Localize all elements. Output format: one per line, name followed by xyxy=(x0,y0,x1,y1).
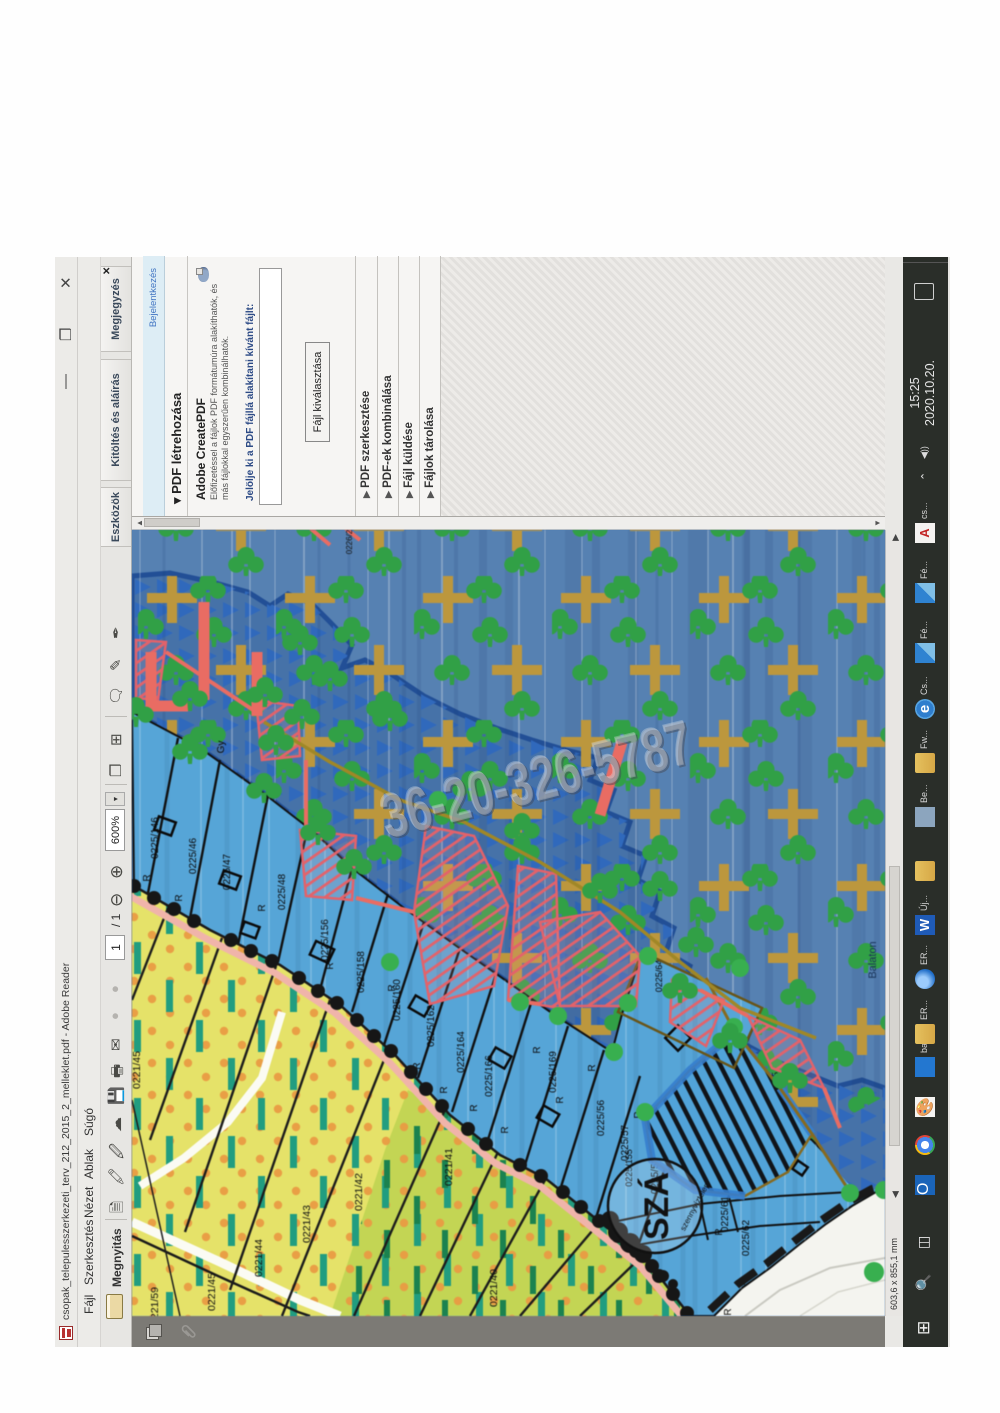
svg-text:0225/156: 0225/156 xyxy=(320,919,331,961)
svg-text:0225/158: 0225/158 xyxy=(356,951,367,993)
svg-text:R: R xyxy=(174,894,185,901)
svg-text:0221/42: 0221/42 xyxy=(353,1173,365,1211)
svg-text:0221/43: 0221/43 xyxy=(301,1205,313,1243)
svg-text:R: R xyxy=(469,1104,480,1111)
svg-text:R: R xyxy=(723,1308,734,1315)
svg-text:0221/41: 0221/41 xyxy=(443,1148,455,1186)
svg-text:R: R xyxy=(257,904,268,911)
svg-text:R: R xyxy=(587,1064,598,1071)
svg-text:R: R xyxy=(714,1228,725,1235)
svg-text:0225/48: 0225/48 xyxy=(277,873,288,910)
svg-text:0225/164: 0225/164 xyxy=(456,1031,467,1073)
svg-text:0221/40: 0221/40 xyxy=(488,1269,500,1307)
svg-text:0225/64: 0225/64 xyxy=(654,960,664,993)
svg-text:SZÁ: SZÁ xyxy=(638,1172,676,1240)
svg-text:0225/169: 0225/169 xyxy=(548,1051,559,1093)
svg-text:R: R xyxy=(439,1086,450,1093)
svg-text:0225/56: 0225/56 xyxy=(596,1099,607,1136)
svg-text:0225/62: 0225/62 xyxy=(741,1219,752,1256)
svg-text:0221/45: 0221/45 xyxy=(132,1051,143,1089)
svg-text:Balaton: Balaton xyxy=(867,941,879,978)
svg-text:R: R xyxy=(555,1096,566,1103)
svg-text:R: R xyxy=(500,1126,511,1133)
svg-text:0221/45: 0221/45 xyxy=(206,1273,218,1311)
svg-text:R: R xyxy=(142,874,153,881)
svg-text:0226/2: 0226/2 xyxy=(345,530,354,554)
svg-text:Gy: Gy xyxy=(216,741,227,754)
svg-text:R: R xyxy=(387,984,398,991)
svg-text:R: R xyxy=(532,1046,543,1053)
svg-text:0225/61: 0225/61 xyxy=(720,1195,731,1232)
svg-text:0221/59: 0221/59 xyxy=(149,1287,161,1316)
svg-text:0225/46: 0225/46 xyxy=(188,837,199,874)
svg-text:0221/44: 0221/44 xyxy=(253,1239,265,1277)
